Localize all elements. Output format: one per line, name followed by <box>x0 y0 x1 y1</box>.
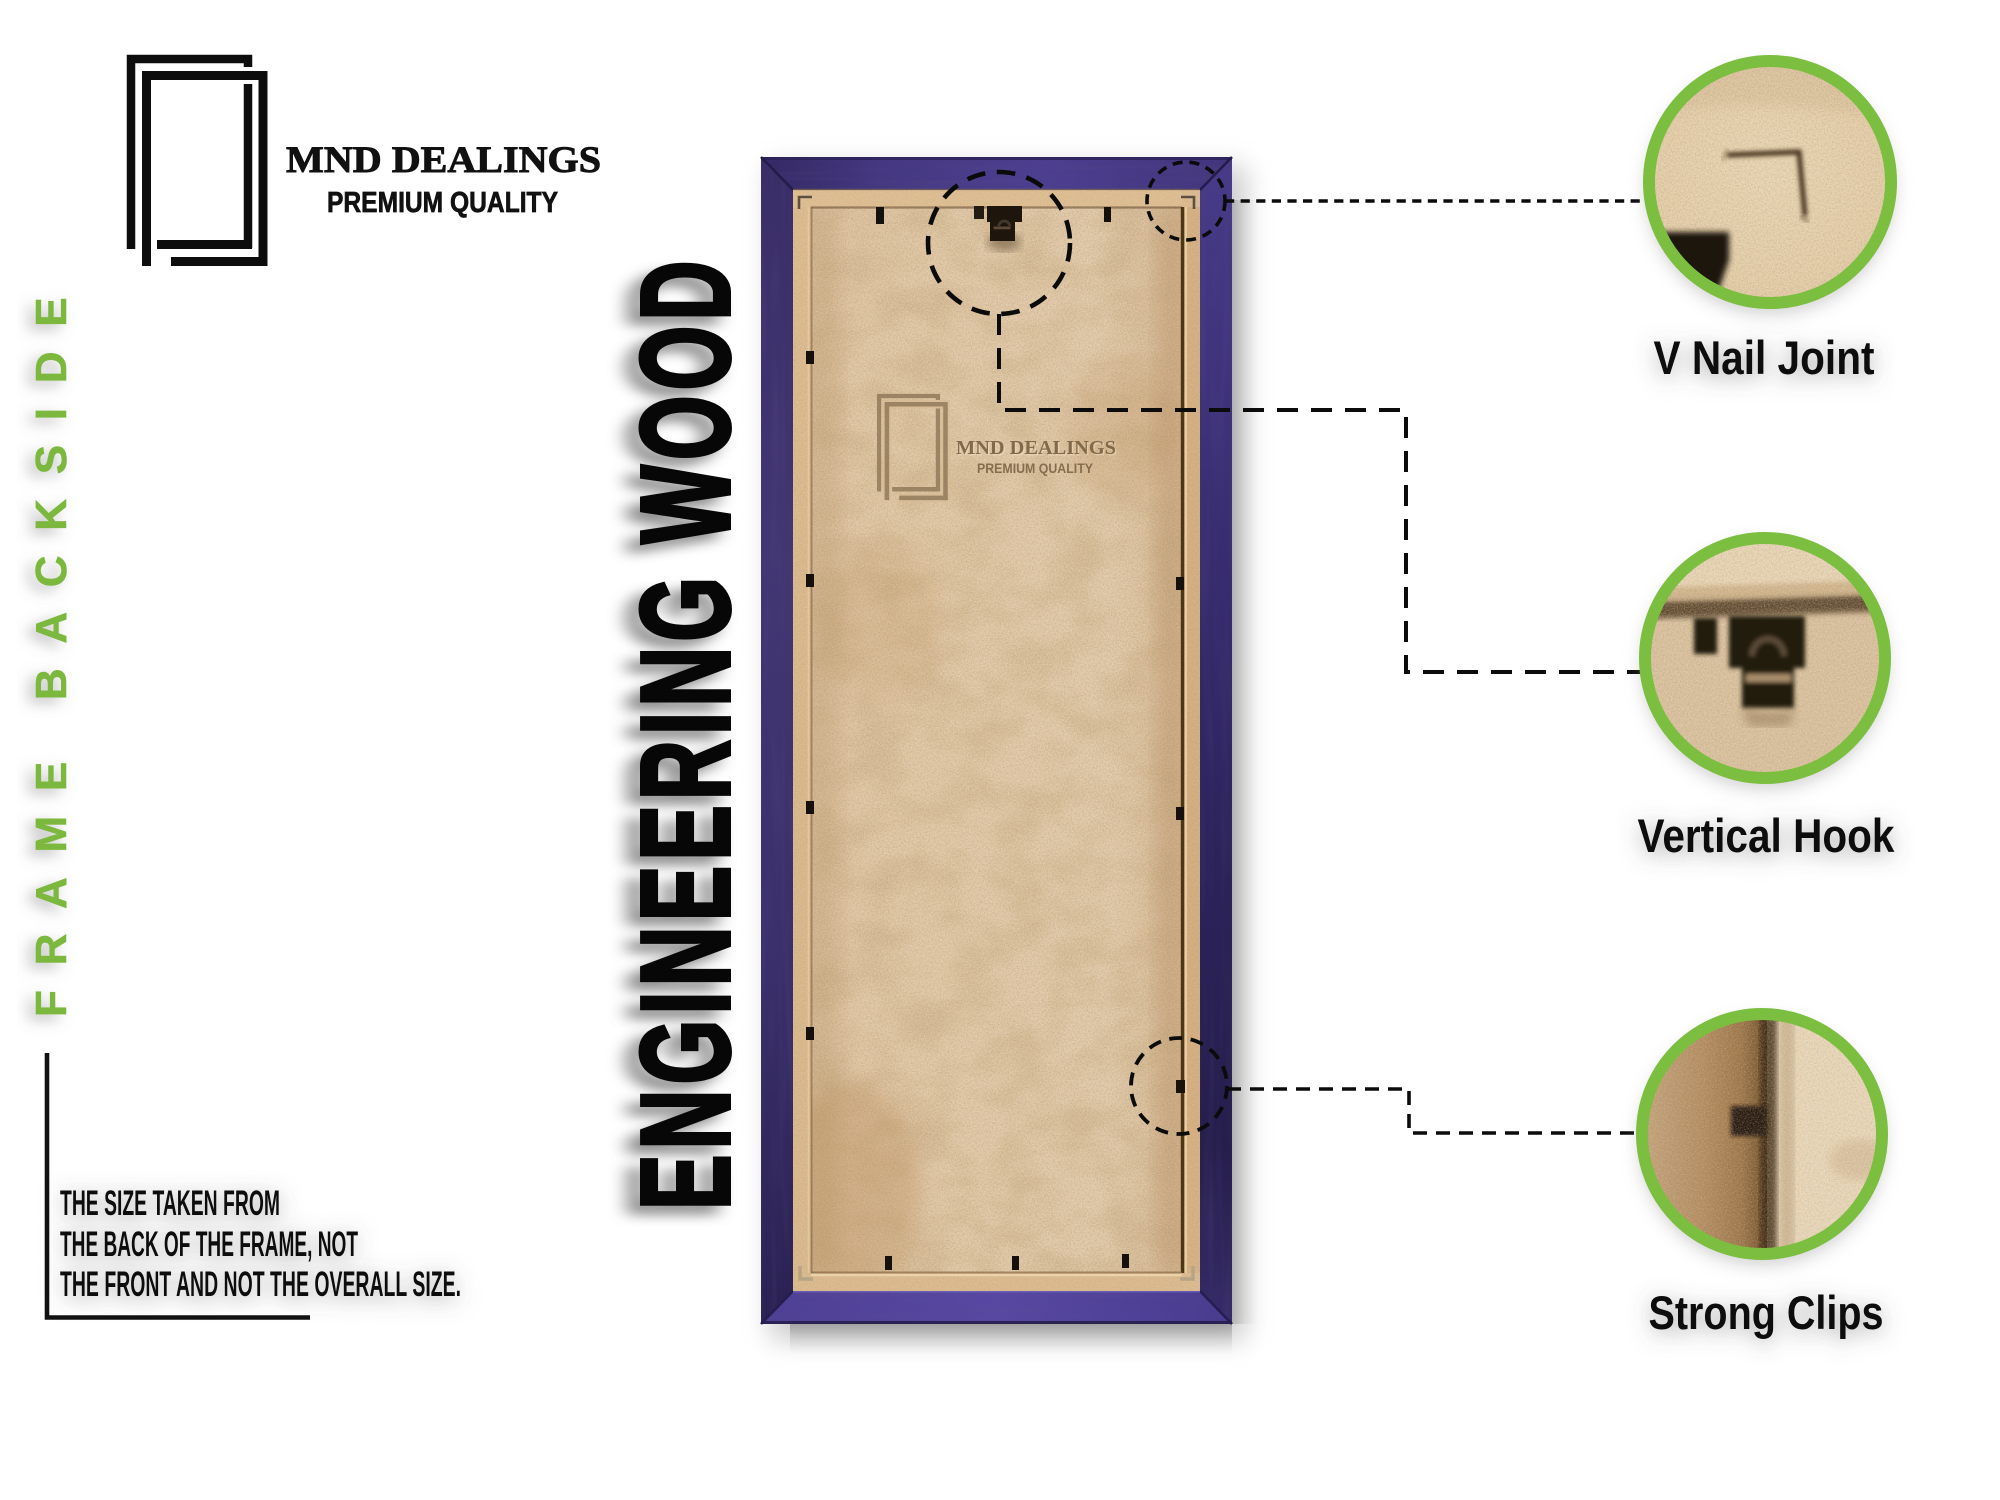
svg-text:THE SIZE TAKEN FROM: THE SIZE TAKEN FROM <box>60 1184 280 1223</box>
svg-text:PREMIUM QUALITY: PREMIUM QUALITY <box>977 461 1093 476</box>
svg-text:THE BACK OF THE FRAME, NOT: THE BACK OF THE FRAME, NOT <box>60 1225 358 1264</box>
svg-text:PREMIUM QUALITY: PREMIUM QUALITY <box>327 187 558 219</box>
svg-text:ENGINEERING WOOD: ENGINEERING WOOD <box>615 255 757 1210</box>
svg-text:THE FRONT AND NOT THE OVERALL: THE FRONT AND NOT THE OVERALL SIZE. <box>60 1265 461 1304</box>
svg-text:MND DEALINGS: MND DEALINGS <box>956 437 1116 459</box>
svg-text:V Nail Joint: V Nail Joint <box>1654 331 1875 384</box>
svg-text:Strong Clips: Strong Clips <box>1649 1286 1884 1339</box>
svg-text:Vertical Hook: Vertical Hook <box>1638 809 1896 862</box>
svg-text:FRAME BACKSIDE: FRAME BACKSIDE <box>27 273 76 1017</box>
svg-text:MND DEALINGS: MND DEALINGS <box>286 140 601 181</box>
